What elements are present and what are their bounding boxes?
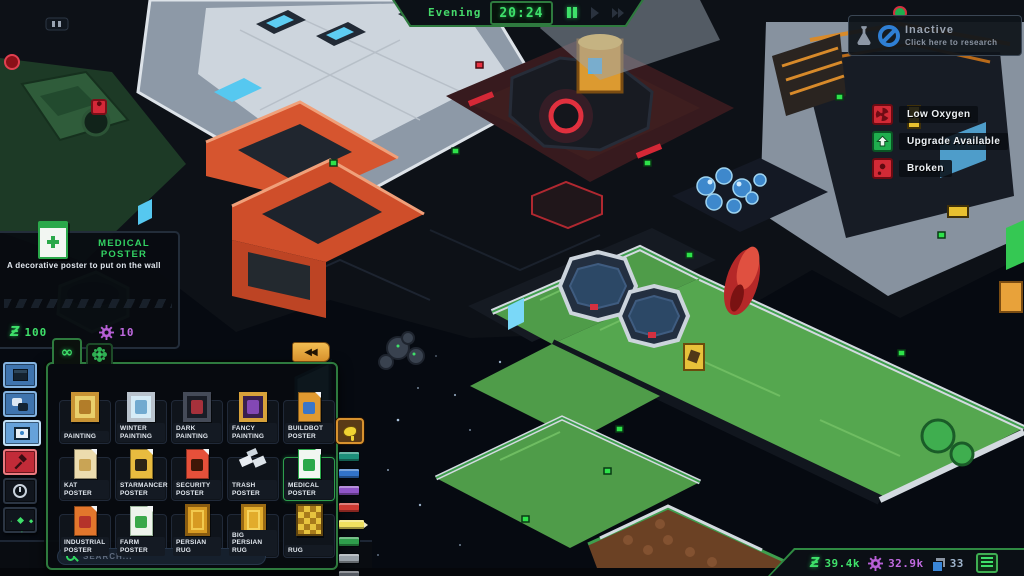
hammer-icon — [12, 454, 28, 470]
color-swatch[interactable] — [338, 451, 360, 462]
item-icon — [298, 392, 321, 422]
cargo-icon — [932, 557, 945, 570]
item-label: MEDICAL POSTER — [285, 480, 333, 499]
wrench-icon — [872, 158, 893, 179]
picture-frame-icon — [14, 427, 30, 440]
gear-icon — [868, 556, 883, 571]
color-swatch[interactable] — [338, 570, 360, 576]
color-palette — [336, 418, 368, 576]
sidebar-item-effects[interactable] — [3, 507, 37, 533]
item-tooltip: MEDICAL POSTER A decorative poster to pu… — [0, 231, 180, 349]
color-swatch[interactable] — [338, 536, 360, 547]
build-item[interactable]: DARK PAINTING — [171, 390, 223, 444]
sidebar-item-demolish[interactable] — [3, 449, 37, 475]
color-swatch[interactable] — [338, 519, 365, 530]
legend-broken: Broken — [872, 158, 1008, 179]
item-grid: PAINTING WINTER PAINTING DARK PAINTING F… — [59, 390, 335, 558]
item-icon — [183, 392, 211, 422]
item-icon — [186, 449, 209, 479]
build-item[interactable]: PAINTING — [59, 390, 111, 444]
item-icon — [238, 453, 268, 479]
collapse-panel-button[interactable]: ◀◀ — [292, 342, 330, 362]
credits-resource: Ƶ 39.4k — [810, 556, 860, 571]
build-sidebar — [3, 362, 41, 533]
window-icon — [13, 369, 28, 381]
tab-all-items[interactable]: ∞ — [52, 338, 82, 364]
play-icon[interactable] — [587, 5, 603, 21]
build-item[interactable]: FARM POSTER — [115, 504, 167, 558]
item-label: FANCY PAINTING — [229, 423, 277, 442]
chat-icon — [12, 398, 28, 411]
color-swatch[interactable] — [338, 468, 360, 479]
item-icon — [296, 504, 323, 536]
tab-decor-category[interactable] — [86, 343, 113, 364]
item-icon — [71, 392, 99, 422]
item-icon — [130, 449, 153, 479]
gears-cost: 10 — [99, 325, 134, 340]
paint-tool-button[interactable] — [336, 418, 364, 444]
legend-label: Upgrade Available — [899, 133, 1008, 150]
gears-resource: 32.9k — [868, 556, 924, 571]
disabled-icon — [878, 25, 900, 47]
build-item[interactable]: INDUSTRIAL POSTER — [59, 504, 111, 558]
legend-low-oxygen: Low Oxygen — [872, 104, 1008, 125]
build-item[interactable]: RUG — [283, 504, 335, 558]
color-swatch[interactable] — [338, 553, 360, 564]
main-menu-button[interactable] — [976, 553, 998, 573]
status-legend: Low Oxygen Upgrade Available Broken — [872, 104, 1008, 179]
day-period-label: Evening — [428, 6, 481, 19]
item-label: BIG PERSIAN RUG — [229, 530, 277, 557]
build-item[interactable]: BUILDBOT POSTER — [283, 390, 335, 444]
item-label: WINTER PAINTING — [117, 423, 165, 442]
item-label: SECURITY POSTER — [173, 480, 221, 499]
legend-upgrade-available: Upgrade Available — [872, 131, 1008, 152]
item-label: RUG — [285, 545, 333, 557]
tooltip-title: MEDICAL POSTER — [74, 238, 174, 260]
item-icon — [127, 392, 155, 422]
build-item[interactable]: WINTER PAINTING — [115, 390, 167, 444]
research-status: Inactive — [905, 24, 997, 36]
item-icon — [74, 506, 97, 536]
infinity-icon: ∞ — [61, 345, 74, 360]
item-icon — [130, 506, 153, 536]
legend-label: Broken — [899, 160, 952, 177]
item-label: INDUSTRIAL POSTER — [61, 537, 109, 556]
time-bar: Evening 20:24 — [392, 0, 644, 27]
credits-icon: Ƶ — [10, 325, 19, 340]
color-swatch[interactable] — [338, 485, 360, 496]
build-item[interactable]: TRASH POSTER — [227, 447, 279, 501]
item-icon — [298, 449, 321, 479]
research-button[interactable]: Inactive Click here to research — [848, 15, 1022, 56]
tooltip-divider — [4, 299, 172, 308]
research-hint: Click here to research — [905, 38, 997, 47]
clock-time: 20:24 — [499, 6, 543, 21]
build-item[interactable]: MEDICAL POSTER — [283, 447, 335, 501]
build-item[interactable]: BIG PERSIAN RUG — [227, 504, 279, 558]
clock-display: 20:24 — [490, 1, 552, 25]
clock-icon — [13, 484, 27, 498]
game-screen: Evening 20:24 Inactive Click here to res… — [0, 0, 1024, 576]
build-item[interactable]: KAT POSTER — [59, 447, 111, 501]
pause-icon[interactable] — [564, 5, 580, 21]
item-label: FARM POSTER — [117, 537, 165, 556]
cargo-resource: 33 — [932, 557, 964, 570]
item-icon — [74, 449, 97, 479]
item-label: KAT POSTER — [61, 480, 109, 499]
paint-blob-icon — [343, 426, 357, 437]
medical-poster-icon — [38, 221, 68, 259]
build-item[interactable]: PERSIAN RUG — [171, 504, 223, 558]
item-icon — [185, 504, 210, 536]
sidebar-item-crew[interactable] — [3, 391, 37, 417]
sidebar-item-decorations[interactable] — [3, 420, 41, 446]
item-icon — [239, 392, 267, 422]
build-item[interactable]: STARMANCER POSTER — [115, 447, 167, 501]
item-label: TRASH POSTER — [229, 480, 277, 499]
build-menu-panel: ∞ ◀◀ PAINTING WINTER PAINTING DARK PAINT… — [46, 362, 338, 570]
item-label: STARMANCER POSTER — [117, 480, 165, 499]
cargo-value: 33 — [950, 557, 964, 570]
build-item[interactable]: FANCY PAINTING — [227, 390, 279, 444]
sparkles-icon — [16, 516, 23, 523]
credits-icon: Ƶ — [810, 556, 819, 571]
upgrade-arrow-icon — [872, 131, 893, 152]
credits-cost: Ƶ 100 — [10, 325, 47, 340]
map-red-light — [476, 62, 483, 68]
sidebar-item-schedule[interactable] — [3, 478, 37, 504]
build-item[interactable]: SECURITY POSTER — [171, 447, 223, 501]
item-label: PAINTING — [61, 431, 109, 443]
gear-icon — [99, 325, 114, 340]
item-label: DARK PAINTING — [173, 423, 221, 442]
fan-icon — [872, 104, 893, 125]
credits-value: 39.4k — [824, 557, 860, 570]
item-label: BUILDBOT POSTER — [285, 423, 333, 442]
swatch-list — [336, 451, 365, 576]
resources-bar: Ƶ 39.4k 32.9k 33 — [768, 548, 1024, 576]
color-swatch[interactable] — [338, 502, 360, 513]
flower-icon — [97, 352, 102, 357]
item-label: PERSIAN RUG — [173, 537, 221, 556]
tooltip-description: A decorative poster to put on the wall — [7, 261, 173, 270]
legend-label: Low Oxygen — [899, 106, 978, 123]
gears-value: 32.9k — [888, 557, 924, 570]
sidebar-item-structures[interactable] — [3, 362, 37, 388]
fast-forward-icon[interactable] — [610, 5, 626, 21]
flask-icon — [855, 24, 873, 48]
